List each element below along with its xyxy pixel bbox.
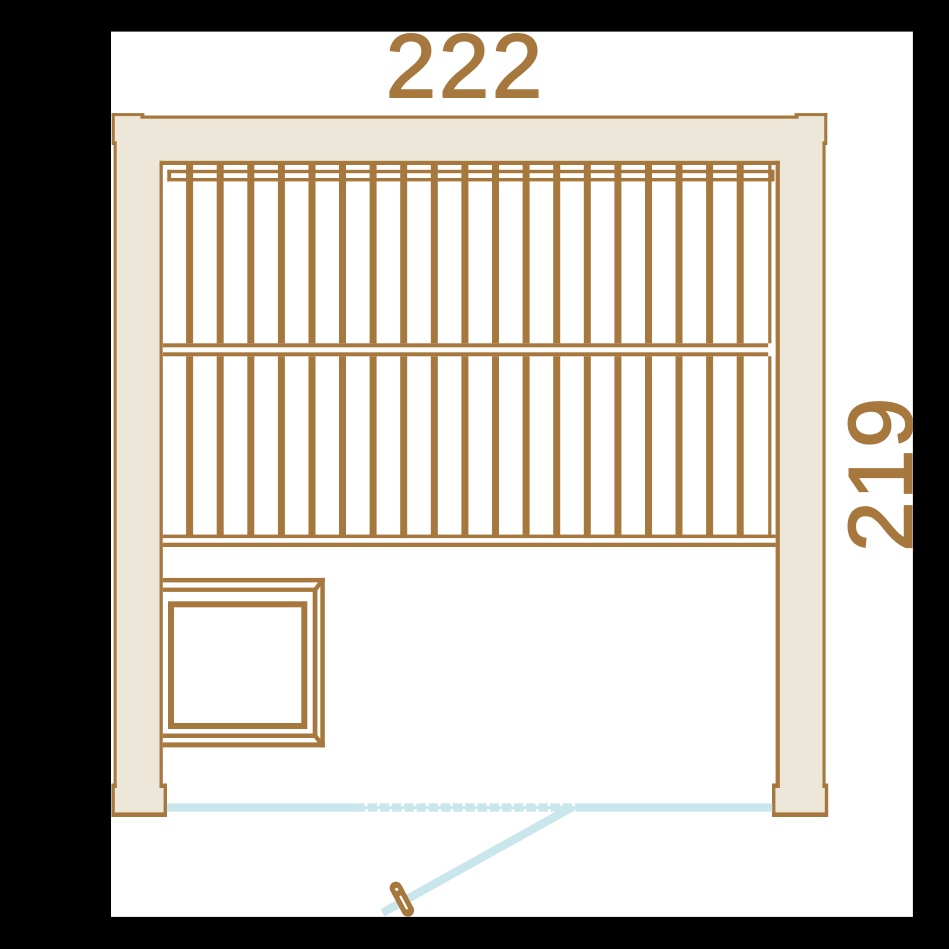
svg-text:222: 222: [386, 17, 545, 117]
